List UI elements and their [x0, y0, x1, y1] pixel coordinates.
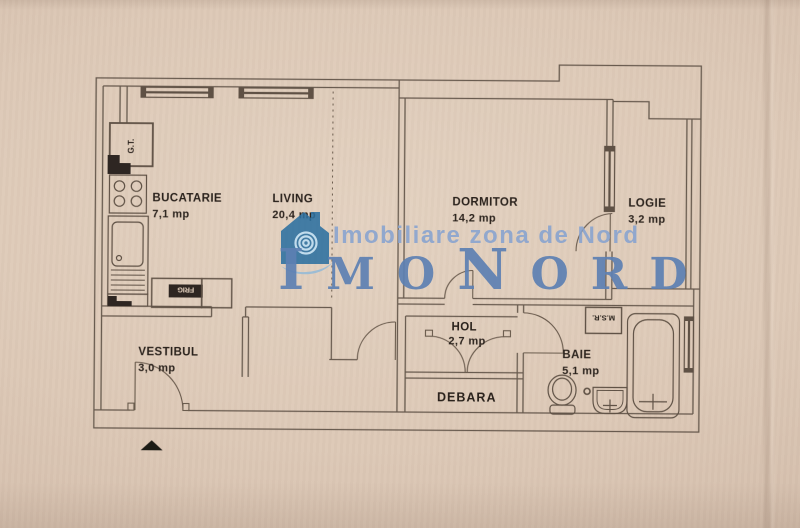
floor-drain-icon: [584, 388, 590, 394]
room-area: 3,0 mp: [138, 362, 175, 374]
room-label-bucatarie: BUCATARIE 7,1 mp: [152, 192, 222, 220]
counter-corner-mark: [108, 155, 131, 174]
room-label-debara: DEBARA: [437, 390, 497, 404]
room-area: 2,7 mp: [448, 335, 485, 347]
washing-machine-label: M.S.R.: [592, 313, 615, 322]
north-arrow-icon: [141, 440, 163, 450]
room-area: 5,1 mp: [562, 365, 599, 377]
floor-plan-svg: BUCATARIE 7,1 mp LIVING 20,4 mp DORMITOR…: [0, 0, 800, 528]
gas-meter-label: G.T.: [127, 139, 136, 154]
window-icon-kitchen: [141, 87, 213, 98]
kitchen-sink-icon: [108, 216, 149, 294]
room-label-vestibul: VESTIBUL 3,0 mp: [138, 346, 198, 374]
room-name: LOGIE: [628, 198, 666, 210]
room-area: 7,1 mp: [152, 208, 189, 220]
floor-plan-photo: BUCATARIE 7,1 mp LIVING 20,4 mp DORMITOR…: [0, 0, 800, 528]
room-label-baie: BAIE 5,1 mp: [562, 349, 599, 377]
room-name: BAIE: [562, 349, 591, 361]
brand-small-2: ORD: [530, 249, 709, 300]
brand-initial-2: N: [457, 237, 530, 303]
baie-door-arc: [523, 313, 563, 353]
kitchen-counter: [108, 294, 148, 306]
stove-icon: [109, 175, 146, 213]
window-icon-living: [239, 88, 313, 99]
washbasin-icon: [593, 387, 627, 413]
room-name: VESTIBUL: [138, 346, 198, 358]
room-name: LIVING: [272, 193, 313, 205]
toilet-icon: [548, 375, 576, 414]
fridge-label: FRIG: [177, 285, 194, 292]
room-name: HOL: [451, 321, 477, 333]
brand-small-1: MO: [326, 249, 457, 300]
room-name: DORMITOR: [452, 196, 518, 208]
room-name: BUCATARIE: [152, 192, 222, 204]
living-door-arc: [357, 322, 395, 360]
window-icon-dormitor: [604, 146, 614, 211]
radiator-icon-baie: [684, 317, 693, 372]
room-label-dormitor: DORMITOR 14,2 mp: [452, 196, 518, 224]
room-label-hol: HOL 2,7 mp: [448, 321, 485, 347]
bathtub-icon: [627, 314, 680, 418]
bathroom-fixtures: [548, 307, 680, 418]
brand-initial-1: I: [278, 237, 326, 303]
